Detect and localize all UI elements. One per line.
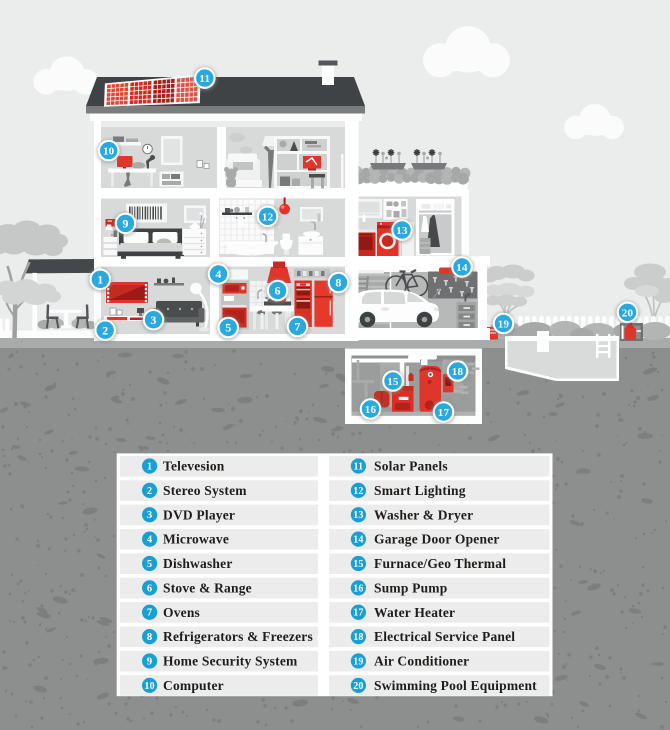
svg-text:6: 6 (274, 284, 280, 298)
svg-text:Refrigerators & Freezers: Refrigerators & Freezers (163, 629, 313, 644)
svg-text:Furnace/Geo Thermal: Furnace/Geo Thermal (374, 556, 506, 571)
svg-text:Air Conditioner: Air Conditioner (374, 654, 469, 669)
svg-text:4: 4 (215, 267, 221, 281)
svg-text:Stereo System: Stereo System (163, 483, 247, 498)
svg-text:Smart Lighting: Smart Lighting (374, 483, 466, 498)
svg-text:Dishwasher: Dishwasher (163, 556, 233, 571)
svg-text:1: 1 (97, 272, 103, 286)
svg-text:Swimming Pool Equipment: Swimming Pool Equipment (374, 678, 537, 693)
svg-text:8: 8 (335, 276, 341, 290)
svg-text:2: 2 (147, 486, 152, 497)
svg-text:Televesion: Televesion (163, 459, 225, 474)
svg-text:14: 14 (353, 535, 363, 546)
svg-text:10: 10 (103, 146, 115, 158)
svg-text:Microwave: Microwave (163, 532, 229, 547)
svg-text:19: 19 (498, 319, 510, 331)
svg-text:12: 12 (262, 211, 274, 223)
svg-text:20: 20 (622, 307, 634, 319)
svg-text:Water Heater: Water Heater (374, 605, 455, 620)
svg-text:Electrical Service Panel: Electrical Service Panel (374, 629, 515, 644)
svg-text:Computer: Computer (163, 678, 224, 693)
svg-text:3: 3 (150, 313, 156, 327)
svg-text:13: 13 (396, 225, 408, 237)
svg-text:Solar Panels: Solar Panels (374, 459, 448, 474)
svg-text:8: 8 (147, 632, 152, 643)
svg-text:4: 4 (147, 535, 153, 546)
svg-text:Sump Pump: Sump Pump (374, 581, 447, 596)
svg-text:11: 11 (353, 462, 363, 473)
svg-text:12: 12 (353, 486, 363, 497)
svg-text:15: 15 (387, 376, 399, 388)
svg-text:6: 6 (147, 583, 152, 594)
svg-text:17: 17 (438, 407, 450, 419)
svg-text:17: 17 (353, 608, 363, 619)
svg-text:1: 1 (147, 462, 152, 473)
svg-text:5: 5 (225, 321, 231, 335)
svg-text:Washer & Dryer: Washer & Dryer (374, 507, 473, 522)
svg-text:20: 20 (353, 681, 363, 692)
svg-text:14: 14 (456, 262, 468, 274)
svg-text:2: 2 (102, 323, 108, 337)
svg-text:16: 16 (365, 404, 377, 416)
svg-text:19: 19 (353, 657, 363, 668)
svg-text:Ovens: Ovens (163, 605, 200, 620)
svg-text:5: 5 (147, 559, 152, 570)
svg-text:13: 13 (353, 510, 363, 521)
svg-text:9: 9 (122, 217, 128, 231)
svg-text:18: 18 (353, 632, 363, 643)
svg-text:7: 7 (147, 608, 152, 619)
svg-text:DVD Player: DVD Player (163, 507, 235, 522)
svg-text:Garage Door Opener: Garage Door Opener (374, 532, 500, 547)
svg-text:Stove & Range: Stove & Range (163, 581, 252, 596)
svg-text:16: 16 (353, 583, 363, 594)
svg-text:15: 15 (353, 559, 363, 570)
svg-text:11: 11 (199, 73, 210, 85)
svg-text:3: 3 (147, 510, 152, 521)
svg-text:18: 18 (452, 366, 464, 378)
svg-text:Home Security System: Home Security System (163, 654, 298, 669)
svg-text:9: 9 (147, 657, 152, 668)
svg-text:10: 10 (144, 681, 154, 692)
svg-text:7: 7 (294, 320, 300, 334)
